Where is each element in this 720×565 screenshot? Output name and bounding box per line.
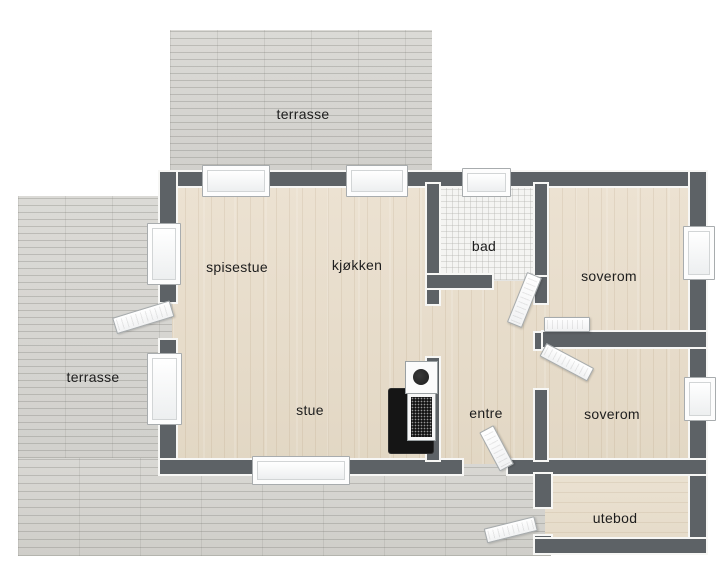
room-label-terrasse-left: terrasse bbox=[67, 370, 120, 384]
terrace-top-deck bbox=[170, 30, 432, 172]
chimney-pipe-icon bbox=[413, 369, 429, 385]
floor-plan: terrasse terrasse spisestue kjøkken bad … bbox=[0, 0, 720, 565]
window-livingroom-icon bbox=[252, 456, 350, 485]
room-label-terrasse-top: terrasse bbox=[277, 107, 330, 121]
bathroom-tile-floor bbox=[433, 184, 541, 281]
room-label-kjokken: kjøkken bbox=[332, 258, 382, 272]
wall-utebod-bottom bbox=[535, 539, 706, 553]
wall-south-mid bbox=[346, 460, 462, 474]
window-dining-icon bbox=[202, 165, 270, 197]
wall-south-right bbox=[508, 460, 706, 474]
room-label-entre: entre bbox=[469, 406, 502, 420]
wood-stove-icon bbox=[407, 393, 436, 441]
stove-grate-icon bbox=[411, 397, 432, 437]
utebod-floor bbox=[545, 470, 694, 543]
wall-hall-right-lower bbox=[535, 390, 547, 460]
wall-bathroom-right bbox=[535, 184, 547, 277]
wall-utebod-left-upper bbox=[535, 474, 551, 507]
wall-bedroom-divider bbox=[543, 332, 706, 347]
window-west-upper-icon bbox=[147, 223, 181, 285]
window-bedroom-top-icon bbox=[683, 226, 715, 280]
window-west-lower-icon bbox=[147, 353, 182, 425]
room-label-spisestue: spisestue bbox=[206, 260, 268, 274]
wall-south-left bbox=[160, 460, 256, 474]
window-kitchen-icon bbox=[346, 165, 408, 197]
door-bedroom-top-icon bbox=[544, 317, 590, 332]
window-bathroom-icon bbox=[462, 168, 511, 197]
stove-chimney-icon bbox=[405, 361, 438, 394]
room-label-bad: bad bbox=[472, 239, 496, 253]
room-label-soverom-top: soverom bbox=[581, 269, 637, 283]
room-label-utebod: utebod bbox=[593, 511, 638, 525]
window-bedroom-bottom-icon bbox=[684, 377, 716, 421]
wall-bathroom-bottom bbox=[427, 275, 492, 288]
room-label-soverom-bottom: soverom bbox=[584, 407, 640, 421]
room-label-stue: stue bbox=[296, 403, 324, 417]
